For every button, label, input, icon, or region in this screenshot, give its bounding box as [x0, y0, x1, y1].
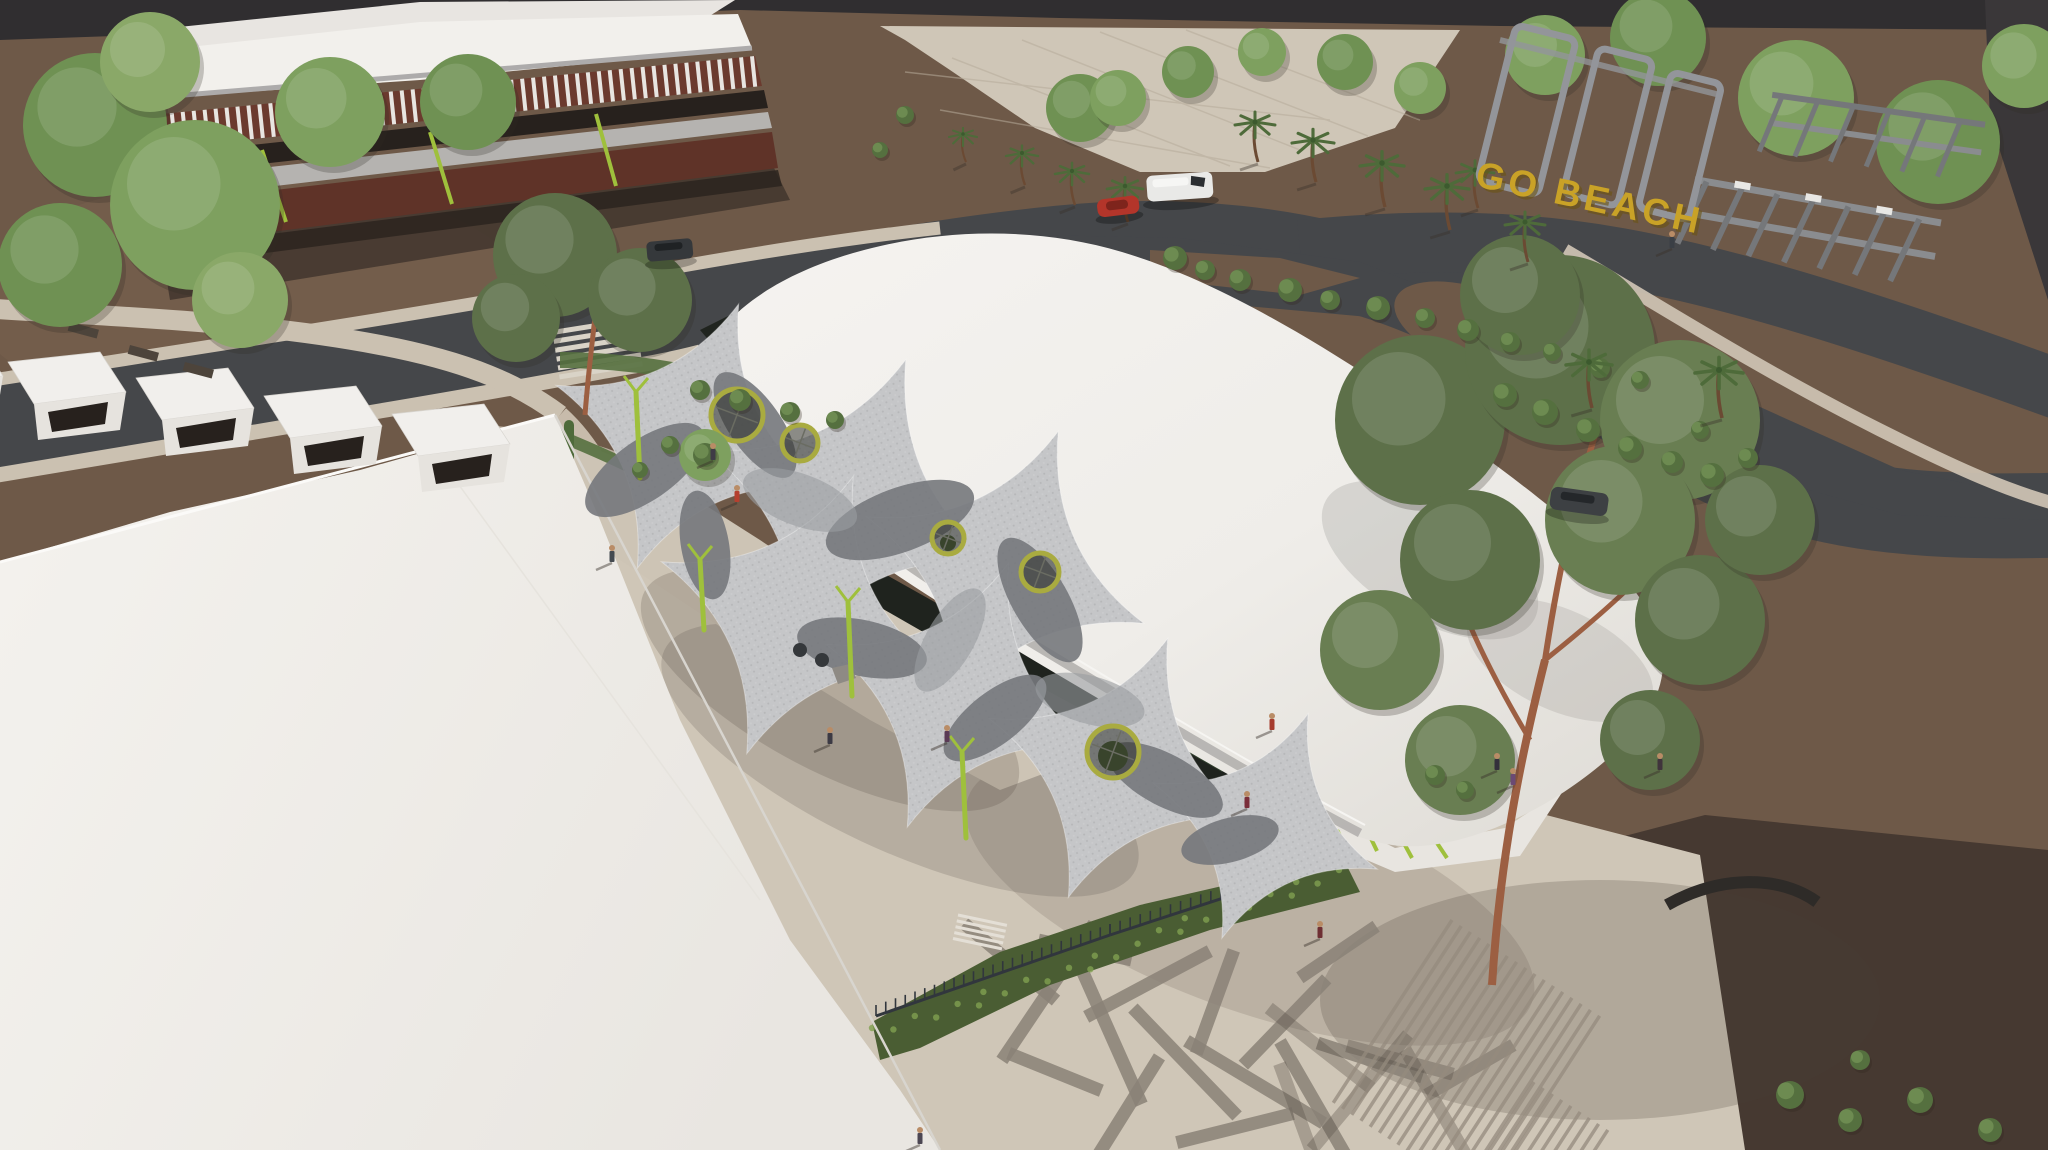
shrub-highlight	[691, 381, 703, 393]
shrub-highlight	[1979, 1119, 1993, 1133]
tree-highlight	[1616, 356, 1704, 444]
person-head	[1494, 753, 1500, 759]
tree-highlight	[1332, 602, 1398, 668]
tree-highlight	[1416, 716, 1477, 777]
shrub-highlight	[1533, 400, 1549, 416]
hedge-dot	[1087, 966, 1093, 972]
shrub-highlight	[1851, 1051, 1863, 1063]
tree-highlight	[202, 262, 255, 315]
person-head	[1269, 713, 1275, 719]
shrub-highlight	[1839, 1109, 1853, 1123]
hedge-dot	[912, 1013, 918, 1019]
shrub-highlight	[633, 463, 643, 473]
suv-body	[646, 238, 694, 262]
shrub-highlight	[897, 107, 908, 118]
person-head	[944, 725, 950, 731]
shrub-highlight	[1662, 452, 1675, 465]
person-body	[1511, 774, 1516, 785]
person-body	[1270, 719, 1275, 730]
person-body	[945, 731, 950, 742]
tree-highlight	[1053, 81, 1090, 118]
palm-crown	[1586, 359, 1592, 365]
shrub-highlight	[1577, 419, 1591, 433]
person-head	[609, 545, 615, 551]
person-body	[918, 1133, 923, 1144]
tree-highlight	[1716, 476, 1777, 537]
hedge-dot	[1044, 978, 1050, 984]
shrub-highlight	[1739, 449, 1751, 461]
person-head	[1317, 921, 1323, 927]
tree-highlight	[1323, 40, 1354, 71]
person-body	[828, 733, 833, 744]
person-head	[827, 727, 833, 733]
shrub-highlight	[1196, 261, 1208, 273]
shrub-highlight	[781, 403, 793, 415]
tree-highlight	[286, 68, 347, 129]
hedge-dot	[1092, 953, 1098, 959]
hedge-dot	[933, 1014, 939, 1020]
aerial-render-scene: GO BEACH GO BEACH	[0, 0, 2048, 1150]
tree-highlight	[430, 64, 483, 117]
hedge-dot	[954, 1001, 960, 1007]
shrub-highlight	[1321, 291, 1333, 303]
shrub-highlight	[1367, 297, 1381, 311]
tree-highlight	[110, 22, 165, 77]
shrub-highlight	[1544, 344, 1555, 355]
tree-highlight	[1750, 52, 1814, 116]
palm-crown	[961, 132, 965, 136]
shrub-highlight	[1230, 270, 1243, 283]
tree-highlight	[481, 283, 529, 331]
person-head	[917, 1127, 923, 1133]
person-body	[1318, 927, 1323, 938]
hedge-dot	[1134, 941, 1140, 947]
shrub-highlight	[1632, 372, 1643, 383]
shrub-highlight	[694, 444, 708, 458]
hedge-dot	[890, 1026, 896, 1032]
tree-highlight	[10, 215, 78, 283]
tree-highlight	[1414, 504, 1491, 581]
hedge-dot	[1066, 965, 1072, 971]
hedge-dot	[1182, 915, 1188, 921]
shrub-highlight	[730, 390, 743, 403]
palm-crown	[1020, 151, 1024, 155]
hedge-dot	[1002, 990, 1008, 996]
palm-crown	[1310, 137, 1315, 142]
hedge-dot	[1177, 928, 1183, 934]
person-head	[1510, 768, 1516, 774]
hedge-dot	[1203, 916, 1209, 922]
shrub-highlight	[662, 437, 673, 448]
person-head	[734, 485, 740, 491]
hedge-dot	[1156, 927, 1162, 933]
person-body	[610, 551, 615, 562]
hedge-dot	[980, 989, 986, 995]
shrub-highlight	[1908, 1088, 1924, 1104]
palm-crown	[1070, 169, 1074, 173]
shrub-highlight	[1416, 309, 1428, 321]
palm-crown	[1716, 367, 1722, 373]
palm-crown	[1444, 183, 1450, 189]
hedge-dot	[1113, 954, 1119, 960]
tree-highlight	[1167, 51, 1196, 80]
person-body	[1495, 759, 1500, 770]
tree-highlight	[1610, 700, 1665, 755]
shrub-highlight	[1426, 766, 1438, 778]
hedge-dot	[1023, 977, 1029, 983]
tree-highlight	[1243, 33, 1269, 59]
architectural-render: GO BEACH GO BEACH	[0, 0, 2048, 1150]
palm-crown	[1253, 120, 1258, 125]
tree-highlight	[1352, 352, 1446, 446]
palm-crown	[1523, 220, 1528, 225]
person-head	[1244, 791, 1250, 797]
shrub-highlight	[1701, 464, 1715, 478]
shrub-highlight	[1279, 279, 1293, 293]
palm-crown	[1379, 160, 1385, 166]
shrub-highlight	[1501, 333, 1513, 345]
shrub-highlight	[873, 143, 883, 153]
shrub-highlight	[1494, 384, 1508, 398]
tree-highlight	[1620, 0, 1673, 52]
person-body	[711, 449, 716, 460]
person-body	[1658, 759, 1663, 770]
hedge-dot	[1289, 892, 1295, 898]
tree-highlight	[1648, 568, 1720, 640]
tree-highlight	[1399, 67, 1428, 96]
shrub-highlight	[1619, 437, 1633, 451]
person-head	[1657, 753, 1663, 759]
sphere-seat	[793, 643, 807, 657]
tree-highlight	[127, 137, 221, 231]
shrub-highlight	[1457, 782, 1468, 793]
sphere-seat	[815, 653, 829, 667]
shrub-highlight	[1458, 320, 1471, 333]
person-body	[735, 491, 740, 502]
shrub-highlight	[827, 412, 838, 423]
person-head	[710, 443, 716, 449]
person-body	[1245, 797, 1250, 808]
tree-highlight	[1096, 76, 1127, 107]
tree-highlight	[1990, 32, 2036, 78]
tree-highlight	[505, 205, 573, 273]
hedge-dot	[976, 1002, 982, 1008]
shrub-highlight	[1777, 1082, 1794, 1099]
shrub-highlight	[1164, 247, 1178, 261]
hedge-dot	[1314, 880, 1320, 886]
palm-crown	[1123, 184, 1128, 189]
